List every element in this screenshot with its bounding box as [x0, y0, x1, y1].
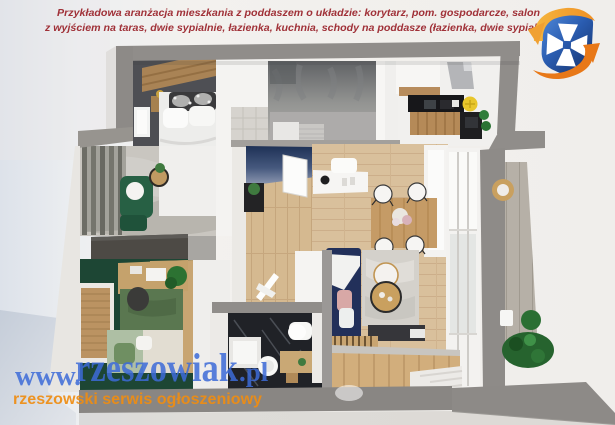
svg-text:.pl: .pl: [239, 357, 269, 387]
svg-text:Przykładowa aranżacja mieszkan: Przykładowa aranżacja mieszkania z podda…: [57, 8, 540, 19]
svg-text:z wyjściem na taras, dwie sypi: z wyjściem na taras, dwie sypialnie, łaz…: [44, 23, 538, 34]
svg-text:www.: www.: [15, 361, 81, 392]
svg-text:rzeszowiak: rzeszowiak: [75, 345, 239, 390]
svg-text:rzeszowski serwis ogłoszeniowy: rzeszowski serwis ogłoszeniowy: [13, 391, 262, 408]
